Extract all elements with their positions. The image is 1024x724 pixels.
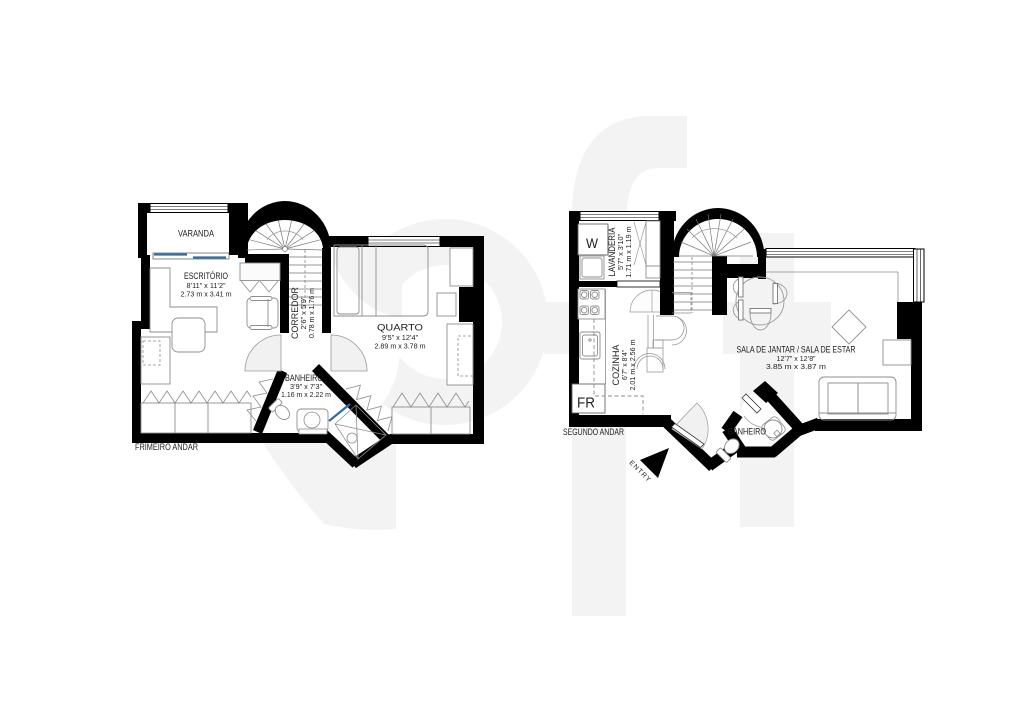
- svg-text:3.85 m x 3.87 m: 3.85 m x 3.87 m: [766, 362, 826, 371]
- svg-text:0.78 m x 1.76 m: 0.78 m x 1.76 m: [307, 288, 316, 338]
- svg-text:SALA DE JANTAR / SALA DE ESTAR: SALA DE JANTAR / SALA DE ESTAR: [737, 345, 856, 355]
- svg-text:SEGUNDO ANDAR: SEGUNDO ANDAR: [563, 427, 624, 437]
- svg-text:VARANDA: VARANDA: [178, 229, 214, 239]
- svg-text:FR: FR: [577, 395, 595, 412]
- svg-text:1.16 m x 2.22 m: 1.16 m x 2.22 m: [281, 390, 331, 399]
- svg-text:W: W: [586, 235, 599, 251]
- svg-text:1.71 m x 1.19 m: 1.71 m x 1.19 m: [624, 227, 633, 278]
- svg-text:FRIMEIRO ANDAR: FRIMEIRO ANDAR: [135, 442, 198, 452]
- svg-text:BANHEIRO: BANHEIRO: [728, 427, 766, 437]
- svg-text:2.73 m x 3.41 m: 2.73 m x 3.41 m: [181, 290, 232, 299]
- svg-text:ESCRITÓRIO: ESCRITÓRIO: [184, 271, 228, 281]
- svg-text:2.01 m x 2.56 m: 2.01 m x 2.56 m: [628, 340, 637, 391]
- svg-text:2.89 m x 3.78 m: 2.89 m x 3.78 m: [375, 342, 426, 351]
- svg-text:QUARTO: QUARTO: [377, 323, 423, 333]
